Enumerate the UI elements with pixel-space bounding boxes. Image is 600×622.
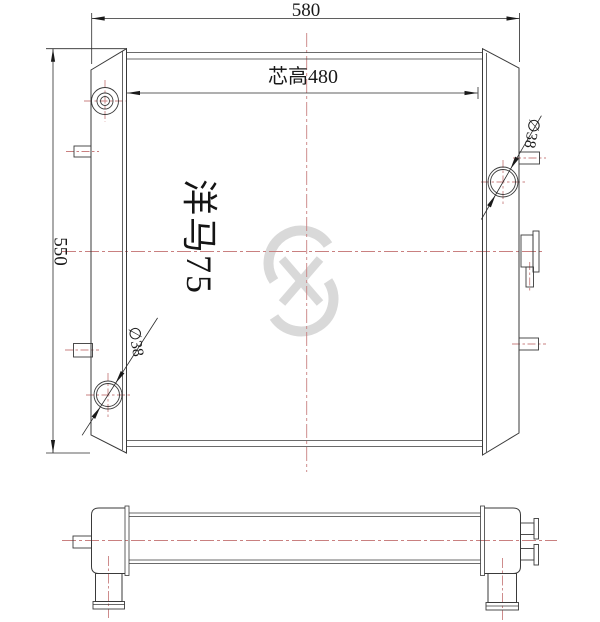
arrowhead — [487, 195, 495, 207]
arrowhead — [51, 49, 55, 62]
arrowhead — [116, 371, 125, 383]
radiator-engineering-drawing: 580 芯高480 550 洋马75 ∅38 ∅38 — [0, 0, 600, 622]
model-label: 洋马75 — [177, 156, 217, 318]
arrowhead — [92, 407, 101, 419]
arrowhead — [51, 440, 55, 453]
bottom-view — [73, 506, 539, 610]
bottom-left-pin — [73, 536, 92, 548]
overall-width-dimension-label: 580 — [266, 1, 346, 20]
arrowhead — [127, 91, 140, 95]
bottom-right-lower-pin-plate — [534, 545, 539, 566]
arrowhead — [92, 16, 105, 20]
bottom-right-upper-pin-plate — [534, 519, 539, 540]
bottom-right-upper-pin — [521, 523, 535, 535]
drawing-linework — [0, 0, 600, 622]
bottom-right-lower-pin — [521, 549, 535, 561]
core-height-dimension-label: 芯高480 — [248, 67, 358, 87]
watermark-logo-icon — [269, 231, 334, 332]
arrowhead — [465, 91, 478, 95]
right-bracket-body — [521, 235, 533, 267]
arrowhead — [511, 157, 519, 169]
arrowhead — [507, 16, 520, 20]
overall-height-dimension-label: 550 — [51, 228, 70, 276]
left-tank-outline — [91, 49, 127, 453]
